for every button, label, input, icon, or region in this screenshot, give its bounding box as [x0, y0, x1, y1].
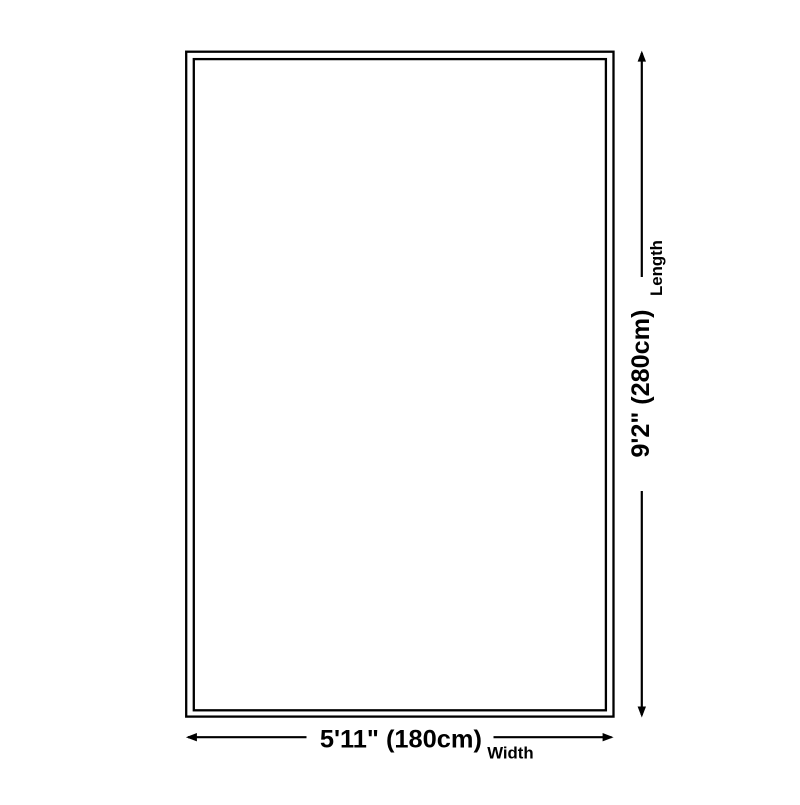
svg-text:Width: Width: [487, 744, 533, 763]
svg-text:5'11" (180cm): 5'11" (180cm): [320, 725, 482, 753]
svg-text:9'2" (280cm): 9'2" (280cm): [627, 310, 655, 458]
svg-text:Length: Length: [647, 240, 666, 296]
